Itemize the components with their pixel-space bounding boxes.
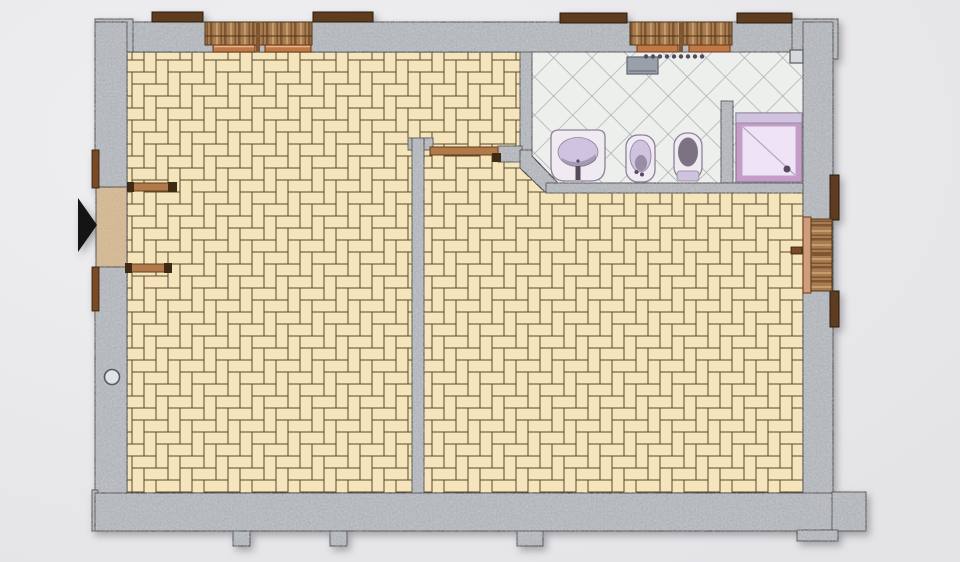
bidet-icon xyxy=(626,135,655,182)
lintel-icon xyxy=(737,13,792,23)
bathroom-wall-bottom xyxy=(546,183,803,193)
lintel-icon xyxy=(560,13,627,23)
door-jamb xyxy=(92,267,99,311)
door-leaf xyxy=(430,147,498,155)
wall-notch-3 xyxy=(517,531,543,546)
basin-tap-icon xyxy=(576,166,581,180)
wall-notch-2 xyxy=(330,531,347,546)
lintel-icon xyxy=(830,175,839,220)
door-hinge-icon xyxy=(492,153,501,162)
lintel-icon xyxy=(152,12,203,22)
mullion xyxy=(256,22,260,52)
toilet-icon xyxy=(674,133,702,181)
door-leaf xyxy=(133,183,169,191)
window-sill xyxy=(689,45,730,52)
door-hinge-icon xyxy=(168,182,177,192)
door-jamb xyxy=(92,150,99,188)
partition-wall xyxy=(412,138,424,493)
washbasin-icon xyxy=(551,130,605,181)
wall-step-bottom-right xyxy=(797,530,838,541)
drain-pipe-icon xyxy=(105,370,120,385)
door-leaf xyxy=(131,264,165,272)
door-leaf-end xyxy=(127,182,134,192)
towel-radiator-icon xyxy=(644,54,704,58)
bathroom-wall-left xyxy=(520,52,532,152)
door-leaf-end xyxy=(125,263,132,273)
shower-partition-wall xyxy=(721,101,733,183)
floor-plan-canvas xyxy=(0,0,960,562)
lintel-icon xyxy=(830,291,839,327)
door-threshold xyxy=(96,187,127,267)
building xyxy=(78,12,866,546)
mullion xyxy=(679,22,683,52)
shower-tray-icon xyxy=(736,113,802,182)
wall-notch-1 xyxy=(233,531,250,546)
window-sill xyxy=(637,45,678,52)
wall-left-upper xyxy=(95,22,127,187)
mullion xyxy=(811,252,832,256)
corner-pilaster xyxy=(790,50,803,63)
door-hinge-icon xyxy=(164,263,172,273)
bathroom-door-stub xyxy=(498,146,522,162)
wall-corner-bottom-right xyxy=(832,492,866,531)
window-handle-icon xyxy=(791,247,802,254)
shower-drain-icon xyxy=(784,166,791,173)
wall-bottom xyxy=(95,493,832,531)
lintel-icon xyxy=(313,12,373,22)
window-sill xyxy=(803,217,811,293)
